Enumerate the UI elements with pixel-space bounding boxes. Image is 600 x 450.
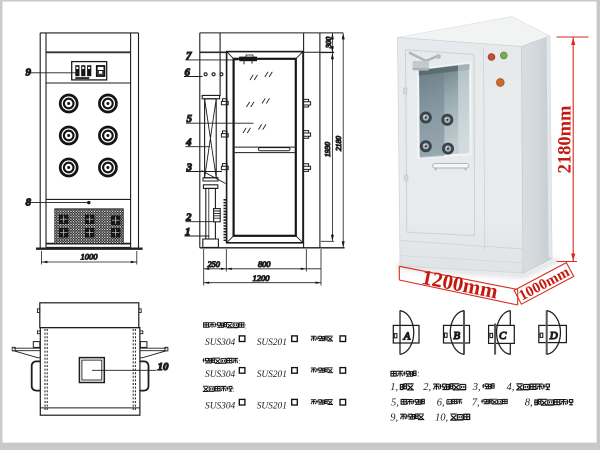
- svg-text:2,: 2,: [423, 382, 431, 393]
- svg-text:SUS304: SUS304: [205, 402, 236, 412]
- svg-text:1,: 1,: [390, 382, 398, 393]
- svg-text:SUS201: SUS201: [257, 338, 287, 348]
- svg-text:7,: 7,: [472, 398, 480, 409]
- svg-text:10,: 10,: [435, 412, 448, 423]
- svg-text:300: 300: [324, 37, 333, 50]
- svg-text::: :: [417, 370, 419, 379]
- svg-text:4,: 4,: [507, 382, 515, 393]
- svg-text:800: 800: [258, 260, 271, 269]
- svg-text:10: 10: [158, 361, 170, 373]
- svg-text:D: D: [549, 330, 558, 342]
- svg-text::: :: [245, 323, 247, 330]
- svg-text:2180: 2180: [334, 136, 343, 151]
- svg-text:8,: 8,: [525, 398, 533, 409]
- svg-text:1200: 1200: [253, 273, 271, 283]
- svg-text:A: A: [403, 330, 411, 342]
- svg-text:250: 250: [208, 260, 221, 269]
- svg-text:9,: 9,: [390, 412, 398, 423]
- svg-text:1930: 1930: [323, 142, 332, 157]
- svg-text:SUS201: SUS201: [257, 370, 287, 380]
- svg-text:5,: 5,: [391, 398, 399, 409]
- svg-text:B: B: [453, 330, 460, 342]
- svg-text:SUS304: SUS304: [205, 338, 236, 348]
- svg-text:6,: 6,: [437, 398, 445, 409]
- svg-text:1000: 1000: [81, 252, 99, 262]
- svg-text:3,: 3,: [472, 382, 481, 393]
- svg-text:C: C: [499, 330, 507, 342]
- svg-text::: :: [233, 387, 235, 394]
- svg-text::: :: [239, 359, 241, 366]
- svg-text:2180mm: 2180mm: [556, 105, 576, 173]
- svg-text:SUS304: SUS304: [205, 370, 236, 380]
- svg-text:SUS201: SUS201: [257, 402, 287, 412]
